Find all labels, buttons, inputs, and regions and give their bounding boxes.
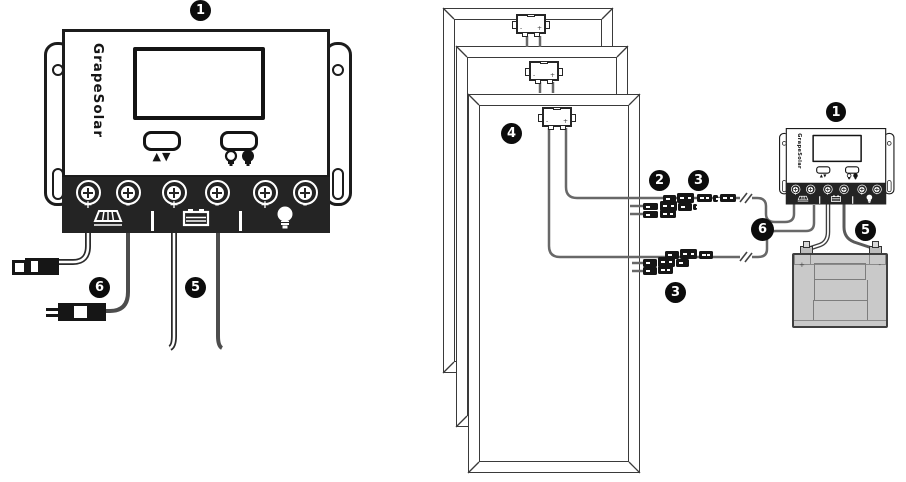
junction-box-outlet (534, 32, 540, 37)
callout-6-wire: 6 (751, 218, 774, 241)
minus-mark: - (533, 73, 535, 79)
strip-divider (819, 196, 820, 204)
battery-label-area (813, 300, 868, 321)
lamp-on-off-icons (223, 148, 257, 174)
screw-slot (887, 180, 892, 192)
mc4-connector (643, 259, 657, 267)
battery-minus-mark: - (878, 262, 881, 269)
strip-divider (151, 211, 154, 231)
wire-solar-plus-outline (56, 229, 88, 262)
polarity-label: - (209, 198, 225, 211)
strip-divider (852, 196, 853, 204)
mc4-connector (677, 193, 694, 203)
plus-mark: + (563, 119, 568, 125)
junction-box-port (553, 107, 561, 110)
mc4-connector (678, 203, 692, 211)
bulb-outline-icon (846, 173, 859, 181)
junction-box-tab (525, 68, 530, 76)
screw-hole (332, 64, 344, 76)
solar-panel-icon (797, 195, 809, 204)
junction-box-tab (512, 21, 517, 29)
junction-box-tab (545, 21, 550, 29)
updown-button[interactable] (143, 131, 181, 151)
mc4-connector (693, 204, 697, 210)
callout-3-connector-top: 3 (688, 170, 709, 191)
battery-label-area (814, 263, 866, 280)
polarity-label: - (297, 198, 313, 211)
minus-mark: - (520, 26, 522, 32)
junction-box-outlet (522, 32, 528, 37)
plus-mark: + (537, 26, 542, 32)
charge-controller: GrapeSolar ▲▼ + - + - (44, 29, 352, 233)
mc4-connector (658, 266, 673, 274)
wiring-diagram: - + - + - + (0, 0, 906, 482)
polarity-label: - (841, 191, 847, 196)
screw-slot (332, 168, 344, 200)
mc4-male-connector (12, 257, 60, 275)
junction-box-outlet (547, 79, 553, 84)
mc4-connector (720, 194, 736, 202)
wire-battery-minus (218, 229, 222, 348)
callout-1-controller: 1 (190, 0, 211, 21)
mc4-connector (643, 211, 658, 218)
junction-box-outlet (560, 125, 566, 130)
junction-box-tab (558, 68, 563, 76)
charge-controller-system: GrapeSolar ▲▼ + - + - + (779, 128, 895, 205)
brand-logo: GrapeSolar (82, 43, 106, 159)
callout-5-battery-cable: 5 (185, 277, 206, 298)
charge-controller-detail: GrapeSolar ▲▼ + - + - (44, 29, 352, 233)
mc4-female-connector (46, 303, 106, 321)
lcd-display (133, 47, 265, 120)
junction-box-tab (571, 114, 576, 122)
solar-panel-icon (92, 208, 124, 232)
polarity-label: + (166, 198, 182, 211)
mc4-connector (699, 251, 713, 259)
polarity-label: + (257, 198, 273, 211)
light-bulb-icon (272, 205, 298, 235)
bulb-outline-icon (223, 148, 257, 170)
mc4-connector (660, 210, 676, 218)
battery-panel-line (814, 280, 815, 300)
polarity-label: - (874, 191, 880, 196)
junction-box: - + (542, 107, 572, 127)
mc4-connector (676, 259, 689, 267)
junction-box: - + (529, 61, 559, 81)
junction-box: - + (516, 14, 546, 34)
callout-5-battery: 5 (855, 220, 876, 241)
plus-mark: + (550, 73, 555, 79)
junction-box-port (540, 61, 548, 64)
mc4-connector (680, 249, 697, 259)
junction-box-outlet (548, 125, 554, 130)
up-down-arrows: ▲▼ (142, 150, 182, 163)
screw-hole (887, 141, 892, 146)
lamp-on-off-icons (846, 173, 859, 183)
light-bulb-icon (865, 194, 875, 205)
junction-box-tab (538, 114, 543, 122)
callout-1-controller-system: 1 (826, 102, 846, 122)
wire-battery-plus-small (808, 203, 828, 249)
callout-4-solar-panel: 4 (501, 123, 522, 144)
connector-notch (31, 261, 38, 272)
battery-post-cap (872, 241, 879, 248)
battery-plus-mark: + (799, 262, 805, 269)
battery-base-line (794, 320, 886, 321)
battery-icon (830, 195, 841, 204)
battery-post-cap (803, 241, 810, 248)
minus-mark: - (546, 119, 548, 125)
strip-divider (239, 211, 242, 231)
lcd-display (812, 135, 862, 162)
brand-logo: GrapeSolar (793, 133, 802, 177)
battery: + - (792, 253, 888, 328)
callout-2-connector: 2 (649, 170, 670, 191)
junction-box-outlet (535, 79, 541, 84)
up-down-arrows: ▲▼ (816, 173, 831, 178)
junction-box-port (527, 14, 535, 17)
battery-icon (181, 207, 211, 231)
mc4-connector (697, 194, 712, 202)
battery-panel-line (867, 280, 868, 300)
mc4-connector (713, 195, 718, 202)
connector-notch (74, 306, 87, 318)
callout-6-adapter-cable: 6 (89, 277, 110, 298)
wire-solar-minus (104, 229, 128, 311)
mc4-connector (643, 203, 658, 210)
mc4-connector (643, 267, 657, 275)
callout-3-connector-bottom: 3 (665, 282, 686, 303)
charge-controller: GrapeSolar ▲▼ + - + - + (779, 128, 895, 205)
